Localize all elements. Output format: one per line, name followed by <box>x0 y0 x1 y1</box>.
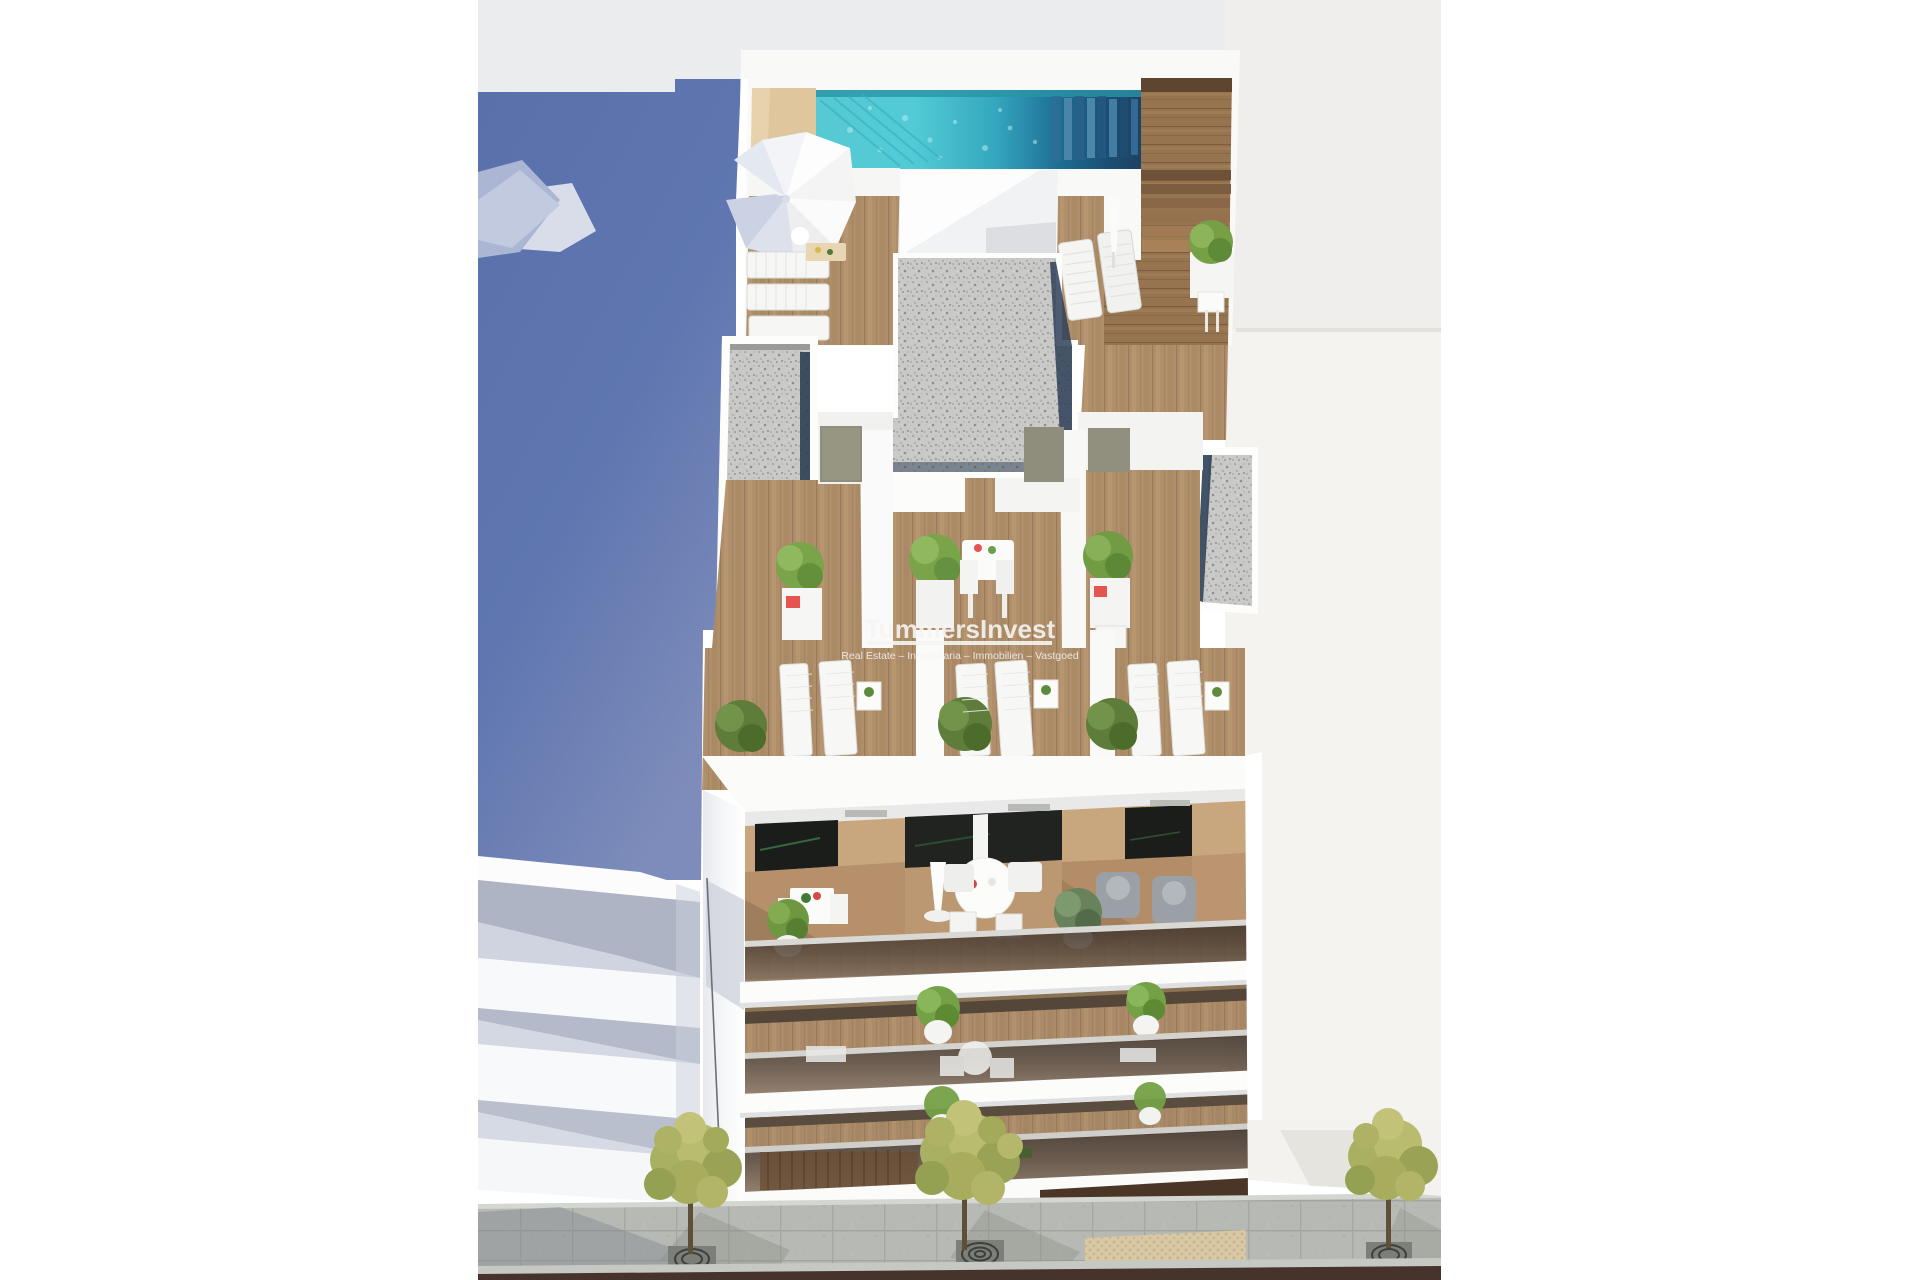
svg-text:Real Estate – Inmobiliaria – I: Real Estate – Inmobiliaria – Immobilien … <box>841 650 1079 662</box>
svg-text:TummersInvest: TummersInvest <box>865 614 1056 644</box>
